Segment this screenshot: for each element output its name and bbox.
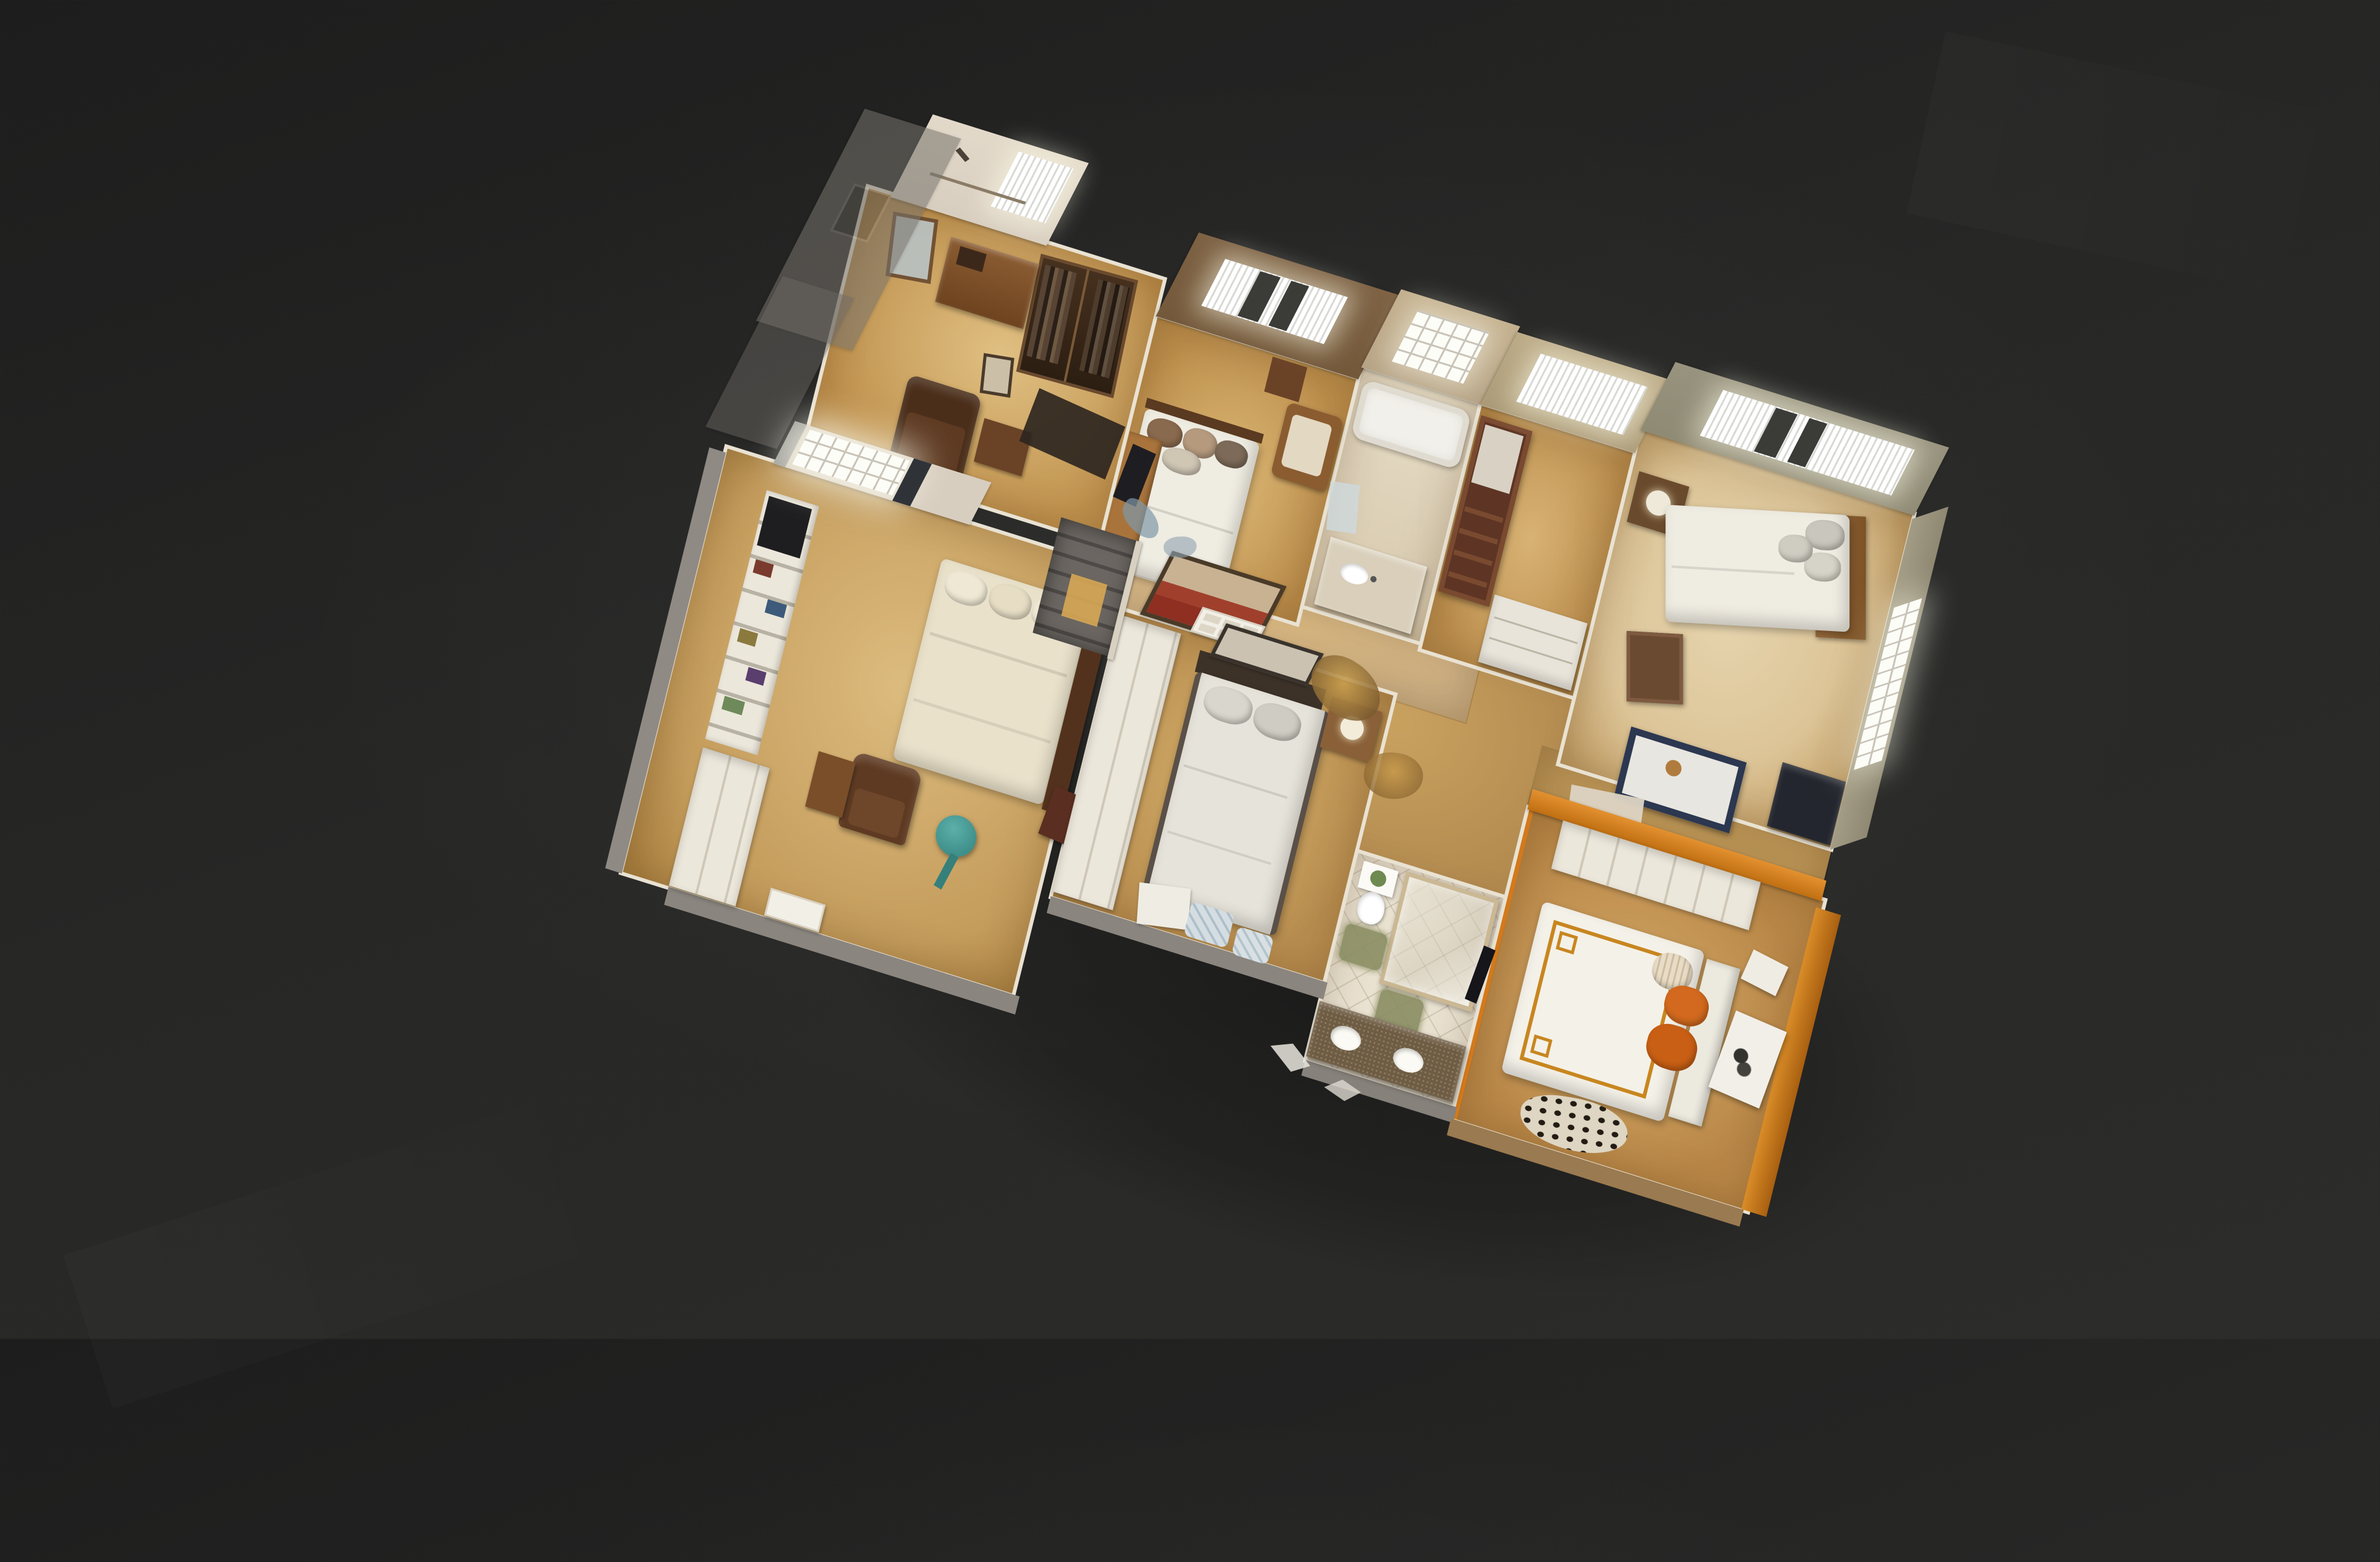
right-pillow: [1778, 534, 1812, 563]
greek-key-border: [1519, 920, 1680, 1099]
bed-bench: [1626, 631, 1683, 705]
window: [990, 152, 1073, 224]
master-pillow: [985, 579, 1035, 624]
dresser-box: [956, 246, 986, 272]
toilet-plant: [1368, 868, 1388, 889]
window-blinds: [1201, 259, 1348, 344]
door-panel: [1197, 623, 1216, 635]
books: [753, 559, 774, 578]
mirror-shard: [1326, 481, 1360, 534]
center-pillow: [1250, 698, 1305, 746]
wall-frame: [980, 353, 1015, 397]
floor-quilt: [1137, 882, 1191, 930]
right-bed: [1665, 505, 1849, 632]
books: [737, 628, 758, 646]
bunk-mattress: [1471, 425, 1523, 494]
chair-cushion: [1280, 413, 1333, 477]
ghost-frame: [830, 183, 892, 243]
books: [765, 599, 787, 619]
teddy-bear: [1664, 758, 1683, 779]
chair-seat: [847, 787, 906, 839]
sink: [1338, 560, 1370, 588]
door-panel: [1203, 613, 1222, 625]
duvet-fold: [1672, 565, 1794, 575]
drawer-line: [1494, 616, 1577, 644]
faucet: [1370, 575, 1377, 583]
tv: [757, 496, 812, 558]
duvet-fold: [1167, 831, 1271, 865]
books: [746, 667, 767, 686]
canvas-marks: [1725, 1040, 1759, 1080]
wall-mark: [956, 148, 970, 162]
guest-pillow: [1212, 437, 1251, 472]
books: [721, 696, 745, 716]
sink: [1328, 1022, 1364, 1054]
duvet-fold: [1184, 764, 1288, 799]
duvet-fold: [930, 632, 1067, 677]
window-grid: [1392, 310, 1490, 384]
center-pillow: [1200, 681, 1256, 730]
sink: [1391, 1044, 1426, 1077]
duvet-fold: [913, 698, 1051, 744]
dollhouse-viewport[interactable]: [0, 0, 2380, 1339]
master-pillow: [941, 567, 991, 611]
drawer-line: [1489, 637, 1572, 664]
